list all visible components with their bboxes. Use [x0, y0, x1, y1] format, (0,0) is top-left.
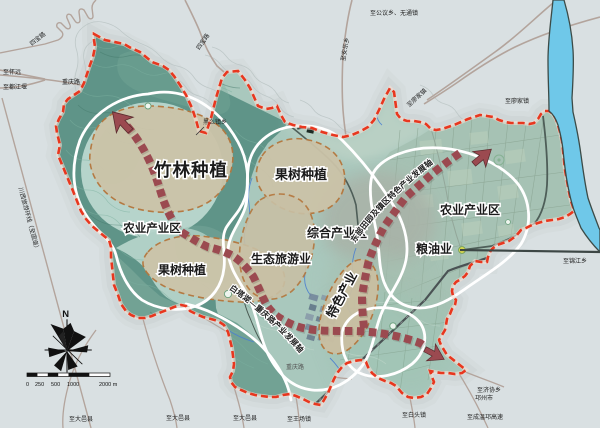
svg-text:黑么镇乡: 黑么镇乡 — [203, 118, 227, 126]
svg-text:果树种植: 果树种植 — [274, 167, 327, 182]
svg-text:至大邑县: 至大邑县 — [69, 415, 93, 423]
svg-text:邛州市: 邛州市 — [475, 394, 493, 402]
svg-text:至济协乡: 至济协乡 — [477, 386, 501, 394]
svg-text:至怀远: 至怀远 — [3, 68, 21, 76]
svg-text:果树种植: 果树种植 — [157, 262, 206, 277]
svg-text:农业产业区: 农业产业区 — [439, 202, 500, 217]
svg-text:至成温邛高速: 至成温邛高速 — [467, 413, 503, 421]
svg-text:生态旅游业: 生态旅游业 — [251, 251, 311, 266]
svg-text:竹林种植: 竹林种植 — [153, 160, 228, 180]
svg-text:至大邑县: 至大邑县 — [166, 414, 190, 422]
svg-text:至锦江乡: 至锦江乡 — [563, 257, 587, 265]
svg-text:N: N — [62, 309, 69, 320]
svg-text:至白头镇: 至白头镇 — [402, 411, 426, 419]
svg-text:至都江堰: 至都江堰 — [3, 83, 27, 91]
svg-text:2000 m: 2000 m — [99, 382, 118, 388]
svg-text:250: 250 — [35, 382, 44, 388]
svg-text:重庆路: 重庆路 — [286, 363, 304, 371]
svg-text:农业产业区: 农业产业区 — [122, 221, 181, 235]
svg-text:至王场镇: 至王场镇 — [287, 415, 311, 423]
svg-text:0: 0 — [26, 382, 29, 388]
svg-text:至公议乡、无通镇: 至公议乡、无通镇 — [370, 9, 418, 17]
svg-text:500: 500 — [51, 382, 60, 388]
svg-text:粮油业: 粮油业 — [416, 241, 452, 256]
svg-text:至大邑县: 至大邑县 — [233, 414, 257, 422]
svg-text:1000: 1000 — [67, 382, 79, 388]
svg-text:重庆路: 重庆路 — [62, 78, 80, 86]
svg-text:至廖家镇: 至廖家镇 — [505, 97, 529, 105]
